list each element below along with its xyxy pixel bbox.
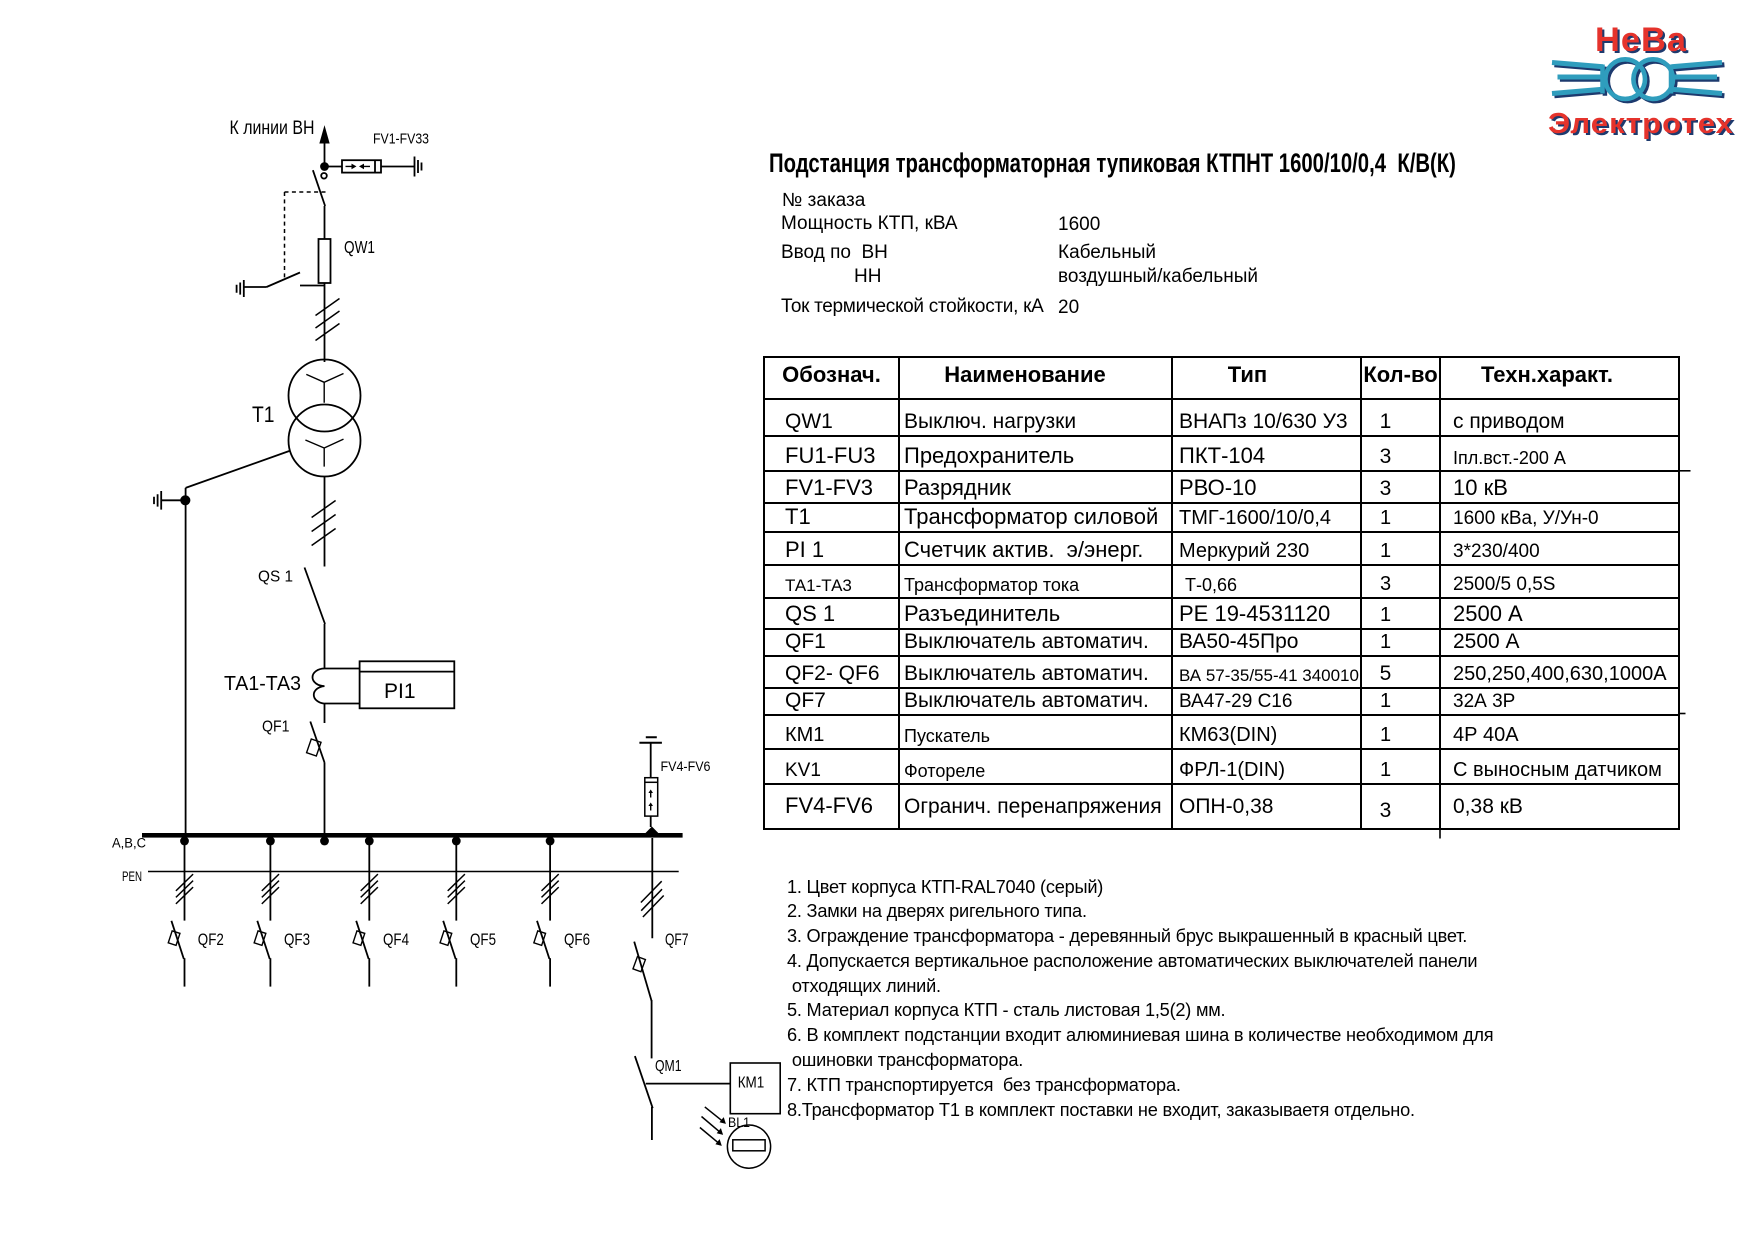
svg-text:QW1: QW1 — [344, 237, 375, 257]
svg-text:НеВа: НеВа — [1595, 21, 1687, 59]
svg-text:Т1: Т1 — [252, 402, 275, 427]
svg-text:QS 1: QS 1 — [258, 569, 293, 586]
svg-text:QF4: QF4 — [383, 931, 409, 949]
svg-text:QM1: QM1 — [655, 1058, 682, 1075]
svg-text:FV4-FV6: FV4-FV6 — [661, 758, 711, 774]
svg-text:QF2: QF2 — [198, 931, 224, 949]
svg-text:QF7: QF7 — [665, 931, 689, 949]
svg-text:PI1: PI1 — [384, 680, 416, 703]
svg-text:QF1: QF1 — [262, 719, 290, 736]
svg-text:FV1-FV33: FV1-FV33 — [373, 132, 429, 148]
svg-text:Электротех: Электротех — [1548, 108, 1734, 140]
svg-text:PEN: PEN — [122, 869, 142, 884]
svg-text:ТА1-ТА3: ТА1-ТА3 — [224, 673, 301, 695]
svg-text:QF6: QF6 — [564, 931, 590, 949]
svg-text:К линии ВН: К линии ВН — [230, 118, 315, 139]
svg-text:A,B,C: A,B,C — [112, 836, 146, 851]
svg-text:QF5: QF5 — [470, 931, 496, 949]
svg-text:КМ1: КМ1 — [738, 1075, 765, 1092]
svg-text:BL1: BL1 — [728, 1114, 750, 1130]
svg-text:QF3: QF3 — [284, 931, 310, 949]
